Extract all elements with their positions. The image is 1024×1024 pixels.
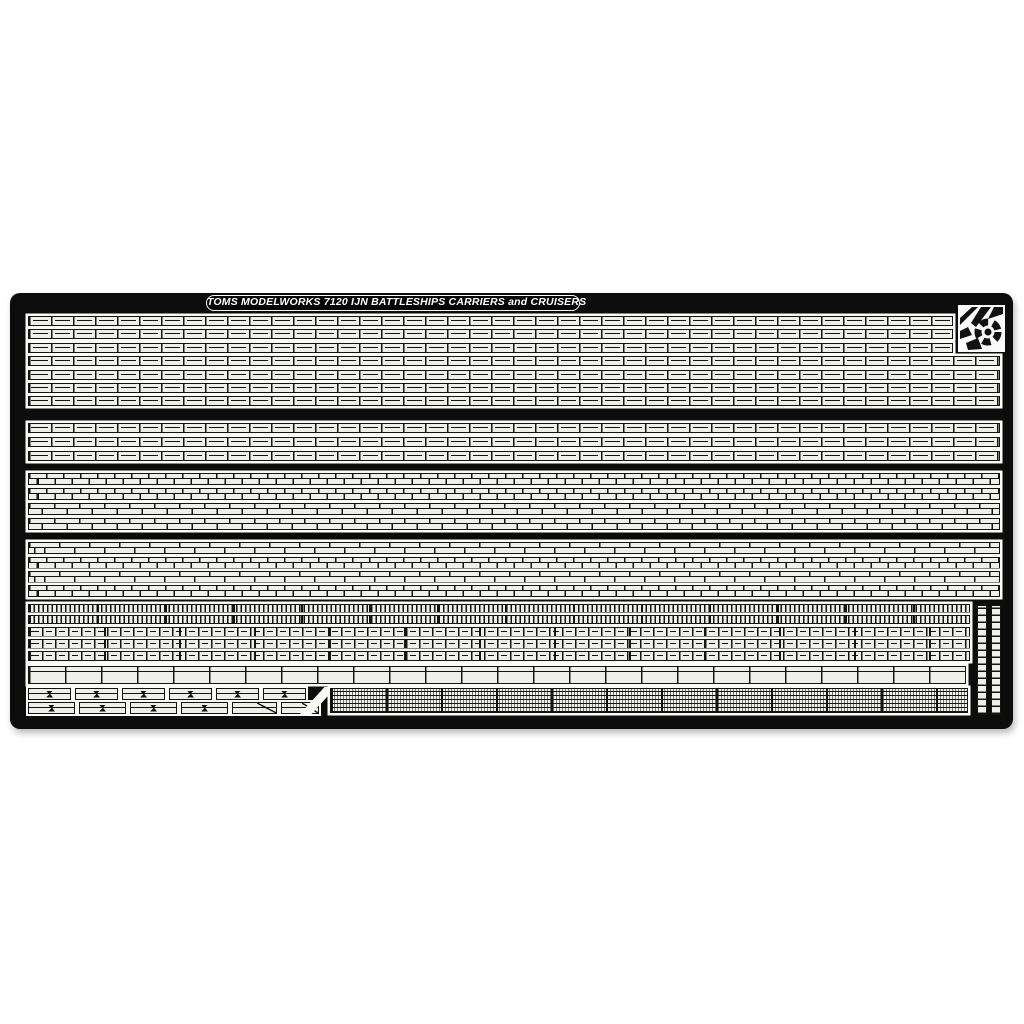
clip-notch [48,705,55,712]
toms-modelworks-logo [958,305,1005,352]
fine-and-mixed-band-5-strip [28,627,970,637]
railing-brick-half [29,494,999,499]
three-bar-railing-band-1-strip [28,370,1000,380]
bracket-parts-row-upper-piece [122,688,165,700]
clip-notch [187,691,194,698]
railing-brick-half [29,563,999,568]
two-bar-railing-band-3-strip [28,473,1000,485]
three-bar-railing-band-1-strip [28,316,953,326]
railing-brick-half [29,548,999,553]
fine-and-mixed-band-5-strip [28,604,970,613]
railing-brick-half [29,577,999,582]
three-bar-railing-band-2-strip [28,451,1000,461]
bracket-parts-row-lower-piece [28,702,75,714]
fine-and-mixed-band-5-strip [28,666,966,684]
clip-notch [201,705,208,712]
fine-ladder-stock-block [330,688,968,713]
three-bar-railing-band-1-strip [28,383,1000,393]
bracket-parts-row-upper-piece [169,688,212,700]
vertical-ladder-strip [991,605,1001,715]
two-bar-railing-band-3-strip [28,503,1000,515]
clip-notch [93,691,100,698]
bracket-parts-row-lower-piece [181,702,228,714]
clip-notch [150,705,157,712]
three-bar-railing-band-1-strip [28,329,953,339]
railing-brick-half [29,509,999,514]
vertical-ladder-strip [977,605,987,715]
three-bar-railing-band-1-strip [28,343,953,353]
ship-wheel-logo-icon [958,305,1005,352]
two-bar-railing-band-4-strip [28,542,1000,554]
bracket-parts-row-lower-piece [232,702,277,714]
clip-notch [234,691,241,698]
two-bar-railing-band-4-strip [28,557,1000,569]
three-bar-railing-band-1-strip [28,356,1000,366]
railing-brick-half [29,524,999,529]
fine-and-mixed-band-5-strip [28,651,970,661]
three-bar-railing-band-2-strip [28,437,1000,447]
two-bar-railing-band-4-strip [28,585,1000,597]
two-bar-railing-band-4-strip [28,571,1000,583]
bracket-parts-row-upper-piece [28,688,71,700]
bracket-parts-row-lower-piece [130,702,177,714]
clip-notch [99,705,106,712]
photo-canvas: TOMS MODELWORKS 7120 IJN BATTLESHIPS CAR… [0,0,1024,1024]
fine-and-mixed-band-5-strip [28,639,970,649]
fine-and-mixed-band-5-strip [28,615,970,624]
railing-brick-half [29,479,999,484]
three-bar-railing-band-1-strip [28,396,1000,406]
bracket-parts-row-lower-piece [79,702,126,714]
three-bar-railing-band-2-strip [28,423,1000,433]
clip-notch [140,691,147,698]
photo-etch-fret: TOMS MODELWORKS 7120 IJN BATTLESHIPS CAR… [10,293,1013,729]
two-bar-railing-band-3-strip [28,488,1000,500]
bracket-parts-row-upper-piece [216,688,259,700]
railing-brick-half [29,591,999,596]
bracket-parts-row-upper-piece [75,688,118,700]
bracket-parts-row-upper-piece [263,688,306,700]
clip-notch [46,691,53,698]
fret-title-label: TOMS MODELWORKS 7120 IJN BATTLESHIPS CAR… [206,295,580,311]
clip-notch [281,691,288,698]
two-bar-railing-band-3-strip [28,518,1000,530]
